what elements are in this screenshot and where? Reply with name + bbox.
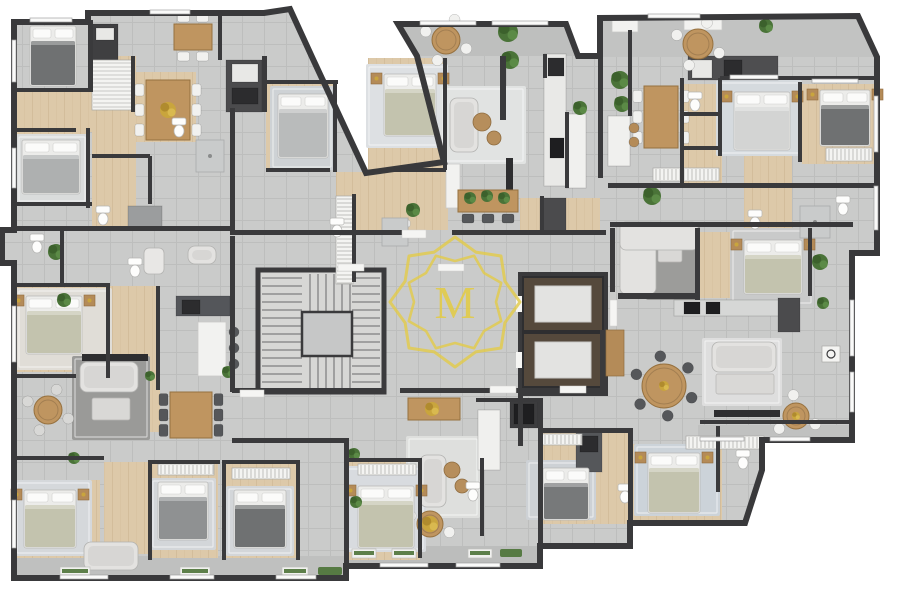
bed-fold (821, 105, 869, 109)
wood-bench (606, 330, 624, 376)
lamp (639, 456, 643, 460)
lamp (88, 299, 92, 303)
lamp (82, 493, 86, 497)
wall-segment (538, 398, 543, 546)
bed (30, 26, 76, 86)
wall-segment (600, 330, 605, 392)
wall-segment (608, 183, 877, 188)
bed-fold (735, 107, 789, 111)
chair (34, 425, 45, 436)
bed-fold (23, 155, 79, 159)
wall-segment (628, 30, 632, 116)
chair (482, 214, 494, 223)
sofa (188, 246, 216, 264)
pillow (737, 95, 760, 104)
doorway (338, 264, 364, 271)
chair (51, 384, 62, 395)
appliance (232, 88, 258, 104)
plant (464, 192, 476, 204)
wall-segment (230, 236, 235, 392)
wall-segment (224, 460, 296, 464)
tv-console (82, 354, 148, 361)
pillow (387, 77, 408, 86)
wall-segment (230, 108, 235, 231)
chair (214, 394, 223, 406)
wall-segment (716, 426, 720, 492)
window (850, 372, 854, 412)
pillow (161, 485, 181, 494)
window (30, 18, 72, 22)
bed (22, 140, 80, 194)
chair (63, 413, 74, 424)
plant (498, 192, 510, 204)
wardrobe (826, 148, 872, 161)
wall-segment (266, 168, 330, 172)
wall-segment (346, 458, 418, 462)
plant (145, 371, 155, 381)
chair (214, 424, 223, 436)
window (770, 437, 810, 441)
window (12, 500, 16, 548)
wardrobe (653, 168, 719, 181)
chair (178, 52, 190, 61)
bed-blanket (735, 107, 789, 149)
bed-blanket (159, 497, 207, 539)
bed-fold (27, 311, 81, 315)
wall-segment (518, 392, 523, 446)
chair (655, 351, 666, 362)
lamp (706, 456, 710, 460)
window (700, 437, 744, 441)
wall-segment (92, 154, 150, 158)
pillow (29, 299, 52, 308)
wall-segment (540, 196, 544, 232)
chair (631, 369, 642, 380)
wardrobe (92, 60, 134, 110)
chair (682, 362, 693, 373)
elevator-cab (535, 342, 591, 378)
doorway (402, 230, 426, 238)
bed (158, 482, 208, 540)
pillow (262, 493, 283, 502)
wall-segment (628, 428, 633, 523)
wall-segment (333, 80, 337, 172)
chair (192, 124, 201, 136)
sofa (84, 542, 138, 570)
wall-segment (598, 56, 603, 178)
window (170, 575, 214, 579)
pillow (52, 493, 73, 502)
pillow (388, 489, 411, 498)
wardrobe (542, 434, 582, 445)
bed-fold (159, 497, 207, 501)
chair (135, 104, 144, 116)
window (874, 186, 878, 230)
wall-segment (680, 78, 684, 184)
plant (812, 254, 828, 270)
bed (234, 490, 286, 548)
window (730, 75, 778, 79)
pouf (473, 113, 491, 131)
pillow (305, 97, 325, 106)
wall-segment (86, 128, 90, 208)
window (456, 563, 500, 567)
bed-fold (649, 468, 699, 472)
chair (633, 111, 642, 123)
doorway (490, 386, 516, 393)
kitchen-counter (608, 116, 630, 166)
pillow (847, 93, 867, 102)
appliance (548, 58, 564, 76)
window (60, 575, 108, 579)
bed (278, 94, 328, 158)
bed-fold (31, 41, 75, 45)
planter-greens (182, 569, 208, 573)
appliance (692, 60, 712, 78)
plant (481, 190, 493, 202)
bed-blanket (745, 255, 801, 293)
plant (614, 96, 630, 112)
wall-segment (230, 230, 412, 235)
wall-segment (14, 128, 76, 132)
chair (159, 394, 168, 406)
appliance (580, 436, 598, 452)
pillow (764, 95, 787, 104)
bed-blanket (359, 501, 413, 547)
lamp (735, 243, 739, 247)
chair (135, 124, 144, 136)
planter-greens (394, 551, 414, 555)
chair (671, 30, 682, 41)
wall-segment (14, 88, 93, 92)
wall-segment (222, 460, 226, 560)
flower-centerpiece (792, 412, 800, 420)
lamp (725, 95, 729, 99)
wall-segment (344, 438, 349, 566)
planter-greens (354, 551, 374, 555)
chair (774, 423, 785, 434)
chair (159, 409, 168, 421)
wall-segment (500, 56, 506, 120)
wall-segment (798, 82, 802, 162)
elevator-cab (535, 286, 591, 322)
window (648, 14, 700, 18)
pillow (823, 93, 843, 102)
wall-segment (480, 458, 484, 536)
elevator-door (516, 352, 522, 368)
chair (22, 396, 33, 407)
pillow (237, 493, 258, 502)
lamp (349, 489, 353, 493)
window (276, 575, 316, 579)
chair (192, 104, 201, 116)
balcony-floor (600, 16, 877, 57)
bed-fold (544, 483, 588, 487)
kitchen-island (612, 20, 638, 32)
lamp (17, 299, 21, 303)
wall-segment (148, 460, 152, 560)
window (12, 306, 16, 362)
pillow (53, 143, 77, 152)
wall-segment (14, 226, 234, 231)
pillow (568, 471, 586, 480)
window (380, 563, 428, 567)
window (492, 21, 548, 25)
planter-greens (284, 569, 306, 573)
bed-fold (279, 109, 327, 113)
wall-segment (296, 460, 300, 560)
wall-segment (156, 286, 160, 390)
logo-letter: M (435, 277, 476, 328)
chair (461, 43, 472, 54)
pillow (281, 97, 301, 106)
bed-blanket (649, 468, 699, 512)
lamp (811, 93, 815, 97)
window (12, 148, 16, 188)
chair (633, 90, 642, 102)
appliance (96, 28, 114, 40)
chair (686, 392, 697, 403)
coffee-table (716, 374, 774, 394)
table-top (174, 24, 212, 50)
wall-segment (106, 283, 110, 378)
wall-segment (418, 458, 422, 558)
pillow (775, 243, 799, 252)
chair (502, 214, 514, 223)
wall-segment (131, 56, 135, 112)
window (850, 300, 854, 356)
hedge (318, 567, 342, 575)
table-top (170, 392, 212, 438)
wall-segment (695, 228, 700, 300)
wall-segment (542, 428, 630, 433)
bed-blanket (235, 505, 285, 547)
pillow (747, 243, 771, 252)
chair (444, 527, 455, 538)
pillow (25, 143, 49, 152)
stool (629, 137, 639, 147)
plant (350, 496, 362, 508)
appliance (550, 138, 564, 158)
bed-fold (235, 505, 285, 509)
pillow (33, 29, 51, 38)
wall-segment (718, 78, 722, 156)
bed (543, 468, 589, 520)
wall-segment (476, 398, 538, 402)
wall-segment (150, 460, 220, 464)
chair (135, 84, 144, 96)
doorway (240, 390, 264, 397)
pillow (676, 456, 697, 465)
pillow (546, 471, 564, 480)
wall-segment (148, 156, 152, 204)
bed-blanket (821, 105, 869, 145)
washer (822, 346, 840, 362)
appliance (182, 300, 200, 314)
sofa (420, 455, 446, 507)
bed-fold (745, 255, 801, 259)
wall-segment (60, 228, 64, 283)
wall-segment (565, 112, 569, 188)
window (874, 96, 878, 152)
chair (714, 47, 725, 58)
chair (420, 26, 431, 37)
wall-segment (808, 228, 812, 296)
plant (611, 71, 629, 89)
pillow (27, 493, 48, 502)
plant (573, 101, 587, 115)
planter-greens (62, 569, 88, 573)
plant (759, 19, 773, 33)
flower-centerpiece (422, 516, 438, 532)
chair (788, 390, 799, 401)
appliance (706, 302, 720, 314)
plant (817, 297, 829, 309)
wood-floor (104, 462, 152, 554)
tv-console (714, 410, 780, 417)
kitchen-counter (128, 206, 162, 228)
wall-segment (452, 230, 606, 235)
wall-segment (682, 146, 718, 150)
flower-centerpiece (160, 102, 176, 118)
hedge (500, 549, 522, 557)
chair (159, 424, 168, 436)
pillow (361, 489, 384, 498)
bed-blanket (279, 109, 327, 157)
planter-greens (470, 551, 490, 555)
chair (635, 399, 646, 410)
flower-centerpiece (425, 402, 439, 416)
bed-blanket (544, 483, 588, 519)
wardrobe (358, 464, 416, 475)
window (812, 79, 858, 83)
wall-segment (14, 283, 110, 287)
wardrobe (158, 464, 214, 475)
pouf (444, 462, 460, 478)
wardrobe (232, 468, 290, 479)
chair (192, 84, 201, 96)
wall-segment (618, 293, 698, 299)
bed-blanket (23, 155, 79, 193)
table-top (644, 86, 678, 148)
stair-void (302, 312, 352, 356)
chair (662, 410, 673, 421)
chair (214, 409, 223, 421)
window (12, 40, 16, 82)
chair (432, 55, 443, 66)
appliance (232, 64, 258, 82)
wall-segment (14, 456, 104, 460)
kitchen-counter (778, 298, 800, 332)
doorway (610, 300, 617, 326)
plant (643, 187, 661, 205)
pillow (185, 485, 205, 494)
sofa (712, 342, 776, 372)
bed-blanket (27, 311, 81, 353)
bed-blanket (31, 41, 75, 85)
pouf (487, 131, 501, 145)
wall-segment (232, 438, 344, 443)
bed-blanket (25, 505, 75, 547)
plant (406, 203, 420, 217)
coffee-table (92, 398, 130, 420)
window (150, 10, 190, 14)
wall-segment (218, 13, 222, 60)
pillow (651, 456, 672, 465)
wall-segment (543, 54, 547, 78)
floorplan-viewer: M (0, 0, 900, 591)
shower-drain (208, 154, 212, 158)
flower-centerpiece (659, 381, 669, 391)
bed-fold (25, 505, 75, 509)
floor-plan-svg: M (0, 0, 900, 591)
wall-segment (88, 20, 93, 90)
wall-segment (682, 112, 718, 116)
wood-floor (16, 92, 92, 132)
wall-segment (610, 222, 853, 227)
bed-fold (359, 501, 413, 505)
lamp (375, 77, 379, 81)
plant (57, 293, 71, 307)
chair (197, 52, 209, 61)
wall-segment (14, 374, 76, 378)
doorway (438, 264, 464, 271)
appliance (514, 404, 534, 424)
window (420, 21, 476, 25)
appliance (684, 302, 700, 314)
wall-segment (14, 202, 92, 206)
wall-segment (700, 420, 855, 424)
doorway (560, 386, 586, 393)
wall-segment (610, 228, 615, 292)
pillow (55, 29, 73, 38)
chair (462, 214, 474, 223)
stool (629, 123, 639, 133)
chair (684, 60, 695, 71)
armchair (144, 248, 164, 274)
kitchen-island (198, 322, 226, 376)
